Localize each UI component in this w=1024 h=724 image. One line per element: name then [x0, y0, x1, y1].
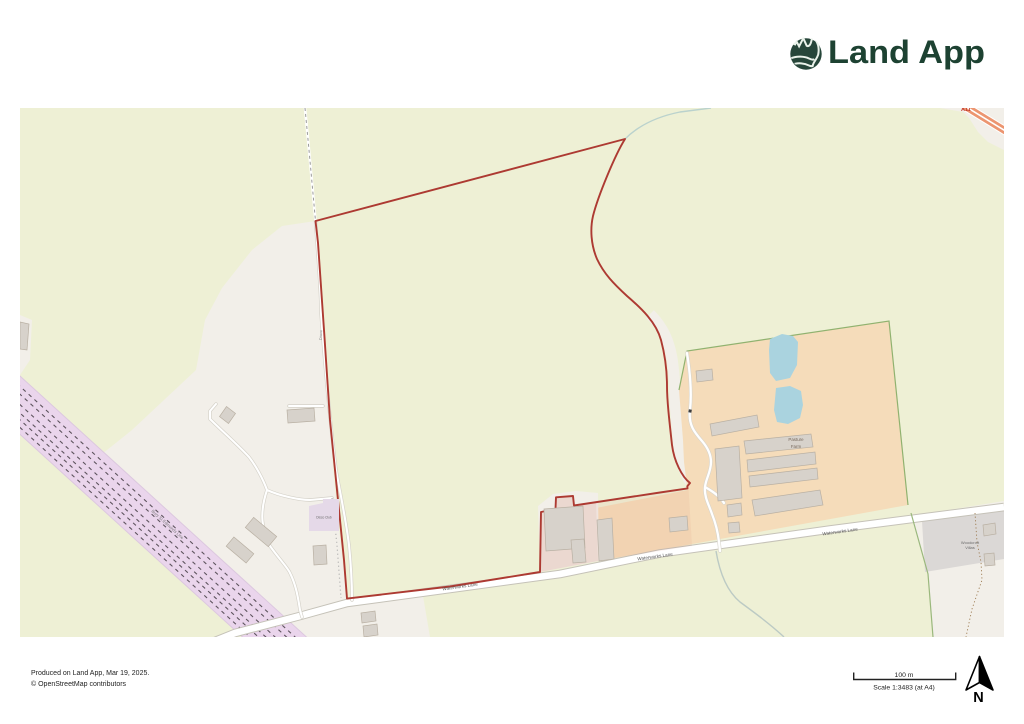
- svg-text:Disco Club: Disco Club: [316, 516, 332, 520]
- svg-text:Land App: Land App: [828, 37, 985, 70]
- svg-text:N: N: [973, 690, 983, 706]
- svg-text:A11: A11: [961, 108, 971, 113]
- svg-text:100 m: 100 m: [895, 672, 914, 679]
- svg-text:Farm: Farm: [791, 444, 802, 449]
- svg-text:Scale 1:3483 (at A4): Scale 1:3483 (at A4): [873, 685, 935, 692]
- svg-text:Pasture: Pasture: [788, 437, 804, 442]
- svg-text:Villas: Villas: [965, 545, 975, 550]
- svg-text:Drove: Drove: [319, 330, 323, 340]
